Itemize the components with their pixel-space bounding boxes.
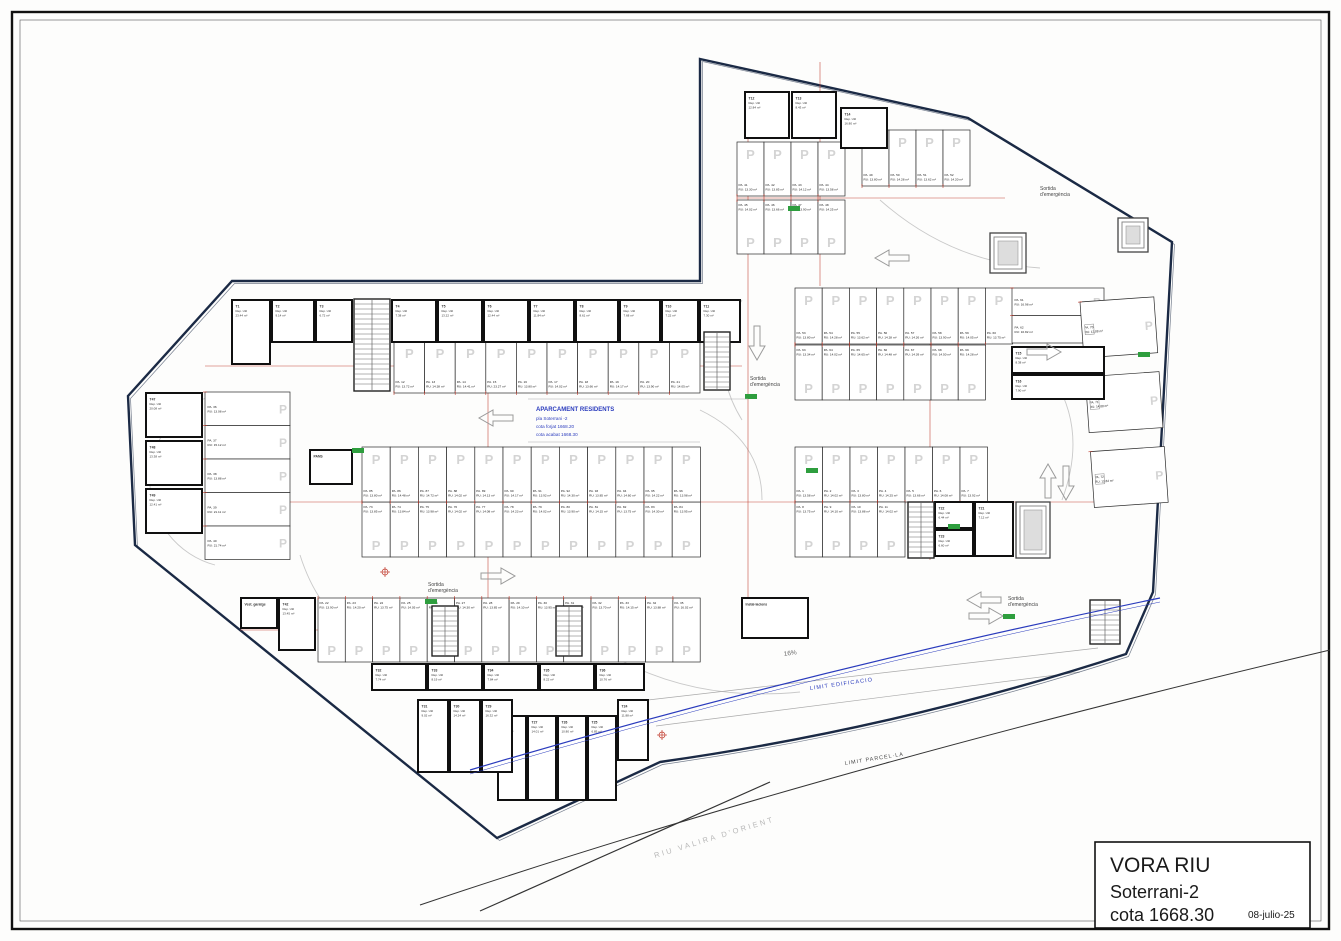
stall-area: RU: 13.95 m² (674, 510, 692, 514)
stall-area: RU: 14.28 m² (824, 336, 842, 340)
stall-number: PA. 15 (487, 380, 496, 384)
storage-room: T47Rep. Util20.08 m² (146, 393, 202, 437)
storage-room: T7Rep. Util11.84 m² (530, 300, 574, 342)
traffic-arrow (481, 568, 515, 584)
parking-bank-left-wing-top-row: PPA. 12RU: 13.72 m²PPA. 13RU: 14.38 m²PP… (394, 341, 700, 395)
parking-stall: PPA. 25RU: 14.05 m² (400, 596, 427, 662)
parking-stall: PPA. 53RU: 13.80 m² (795, 288, 822, 346)
stall-area: RU: 13.66 m² (766, 208, 784, 212)
emergency-exit-line2: d'emergència (1008, 602, 1038, 608)
room-area: 16.80 m² (845, 122, 857, 126)
stall-area: RU: 13.85 m² (589, 494, 607, 498)
stall-number: PA. 80 (561, 505, 570, 509)
stall-p-mark: P (887, 452, 896, 467)
storage-room: T27Rep. Util14.01 m² (528, 716, 556, 800)
stall-area: RU: 14.23 m² (505, 510, 523, 514)
room-name: T11 (704, 305, 710, 309)
stall-area: RU: 13.30 m² (739, 188, 757, 192)
stall-area: RU: 13.90 m² (640, 385, 658, 389)
room-name: T3 (320, 305, 324, 309)
stall-p-mark: P (859, 452, 868, 467)
stall-area: RU: 13.95 m² (538, 606, 556, 610)
stall-number: PA. 40 (208, 539, 217, 543)
room-name: T10 (666, 305, 672, 309)
center-note-title: APARCAMENT RESIDENTS (536, 407, 614, 413)
stall-area: RU: 14.02 m² (448, 494, 466, 498)
room-use: Rep. Util (580, 309, 592, 313)
parking-stall: PPA. 86RU: 14.48 m² (390, 447, 418, 504)
room-name: T4 (396, 305, 400, 309)
parking-stall: PPA. 14RU: 14.41 m² (455, 341, 486, 395)
parking-stall: PPA. 21RU: 14.05 m² (669, 341, 700, 395)
stall-area: RU: 14.02 m² (533, 510, 551, 514)
stall-p-mark: P (485, 452, 494, 467)
elevator-core (1016, 502, 1050, 558)
stall-p-mark: P (491, 643, 500, 658)
parking-stall: PPA. 83RU: 14.30 m² (644, 500, 672, 557)
room-name: T31 (422, 705, 428, 709)
stall-p-mark: P (654, 452, 663, 467)
stall-area: RU: 14.28 m² (878, 336, 896, 340)
stall-area: RU: 13.58 m² (820, 188, 838, 192)
room-use: Rep. Util (454, 709, 466, 713)
stall-number: PA. 61 (1015, 298, 1024, 302)
room-name: T42 (283, 603, 289, 607)
storage-room: T14Rep. Util16.80 m² (841, 108, 887, 148)
parking-stall: PPA. 11RU: 14.02 m² (878, 500, 906, 557)
parking-stall: PPA. 42RU: 13.85 m² (764, 142, 791, 198)
parking-stall: PPA. 55RU: 13.62 m² (849, 288, 876, 346)
parking-stall: PPA. 2RU: 14.02 m² (823, 447, 851, 504)
parking-stall: PPA. 13RU: 14.38 m² (425, 341, 456, 395)
parking-stall: PPA. 1RU: 13.58 m² (795, 447, 823, 504)
stall-area: RU: 13.98 m² (420, 510, 438, 514)
room-use: Rep. Util (488, 309, 500, 313)
parking-stall: PPA. 67RU: 14.39 m² (904, 343, 931, 400)
stall-area: RU: 13.90 m² (933, 336, 951, 340)
parking-stall: PPA. 92RU: 14.30 m² (559, 447, 587, 504)
parking-stall: PPA. 80RU: 13.90 m² (559, 500, 587, 557)
room-area: 16.32 m² (486, 714, 498, 718)
stall-area: RU: 14.17 m² (610, 385, 628, 389)
stall-p-mark: P (1150, 393, 1159, 408)
stall-area: RU: 21.74 m² (208, 543, 226, 547)
stall-area: RU: 13.75 m² (374, 606, 392, 610)
room-area: 8.43 m² (796, 106, 806, 110)
room-name: T22 (939, 507, 945, 511)
stall-number: PA. 90 (505, 489, 514, 493)
stall-p-mark: P (804, 381, 813, 396)
stall-p-mark: P (1144, 318, 1153, 333)
stall-p-mark: P (913, 381, 922, 396)
room-area: 9.14 m² (276, 314, 286, 318)
room-area: 7.68 m² (624, 314, 634, 318)
parking-stall: PPA. 75RU: 13.98 m² (418, 500, 446, 557)
storage-room: T34Rep. Util7.84 m² (484, 664, 538, 690)
stall-area: RU: 13.92 m² (962, 494, 980, 498)
parking-stall: PPA. 43RU: 14.12 m² (791, 142, 818, 198)
level-elevation: cota 1668.30 (1110, 905, 1214, 925)
parking-bank-center-bank-upper: PPA. 85RU: 13.80 m²PPA. 86RU: 14.48 m²PP… (362, 447, 700, 504)
stall-p-mark: P (942, 452, 951, 467)
stall-p-mark: P (382, 643, 391, 658)
stall-number: PA. 48 (820, 203, 829, 207)
parking-bank-right-center-row-2: PPA. 63RU: 13.34 m²PPA. 64RU: 14.02 m²PP… (795, 343, 985, 400)
storage-room: T35Rep. Util8.22 m² (540, 664, 594, 690)
center-note-line-3: cota acabat 1668.30 (536, 432, 578, 437)
room-area: 14.24 m² (454, 714, 466, 718)
stall-p-mark: P (967, 293, 976, 308)
limit-parcella-label: LIMIT PARCEL·LA (844, 752, 904, 767)
parking-stall: PPA. 33RU: 14.15 m² (618, 596, 645, 662)
stall-p-mark: P (682, 538, 691, 553)
stall-number: PA. 66 (878, 348, 887, 352)
storage-room: T31Rep. Util9.02 m² (418, 700, 448, 772)
stall-area: RU: 14.02 m² (739, 208, 757, 212)
lift-car-inner (1024, 510, 1042, 550)
stall-p-mark: P (940, 381, 949, 396)
plan-layer: PPA. 1RU: 13.58 m²PPA. 2RU: 14.02 m²PPA.… (128, 59, 1175, 841)
turning-arc (700, 410, 762, 500)
stall-area: RU: 13.90 m² (561, 510, 579, 514)
stall-area: RU: 14.05 m² (671, 385, 689, 389)
stall-number: PA. 22 (320, 601, 329, 605)
room-area: 7.84 m² (488, 678, 498, 682)
room-use: Rep. Util (666, 309, 678, 313)
stall-p-mark: P (400, 452, 409, 467)
equipment-mark-green (1138, 352, 1150, 357)
stall-number: PA. 91 (533, 489, 542, 493)
parking-stall: PPA. 12RU: 13.72 m² (394, 341, 425, 395)
parking-stall: PPA. 22RU: 13.90 m² (318, 596, 345, 662)
stall-p-mark: P (619, 346, 628, 361)
stall-area: RU: 13.84 m² (392, 510, 410, 514)
stall-number: PA. 88 (448, 489, 457, 493)
traffic-arrow (969, 608, 1003, 624)
emergency-exit-line2: d'emergència (1040, 192, 1070, 198)
parking-stall: PPA. 77RU: 14.08 m² (475, 500, 503, 557)
storage-room: T33Rep. Util8.19 m² (428, 664, 482, 690)
parking-stall: PPA. 17RU: 14.02 m² (547, 341, 578, 395)
storage-room: PANS (310, 450, 352, 484)
storage-room: T5Rep. Util13.22 m² (438, 300, 482, 342)
room-name: T47 (150, 398, 156, 402)
stall-number: PA. 73 (364, 505, 373, 509)
room-name: T29 (486, 705, 492, 709)
stall-area: RU: 14.48 m² (878, 353, 896, 357)
stall-number: PA. 60 (987, 331, 996, 335)
room-name: PANS (314, 455, 324, 459)
stall-number: PA. 64 (824, 348, 833, 352)
room-name: T21 (979, 507, 985, 511)
room-area: 7.90 m² (1016, 389, 1026, 393)
room-area: 8.61 m² (580, 314, 590, 318)
storage-room: T2Rep. Util9.14 m² (272, 300, 314, 342)
parking-bank-left-edge-strip: PPA. 36RU: 13.08 m²PPA. 37RU: 15.12 m²PP… (203, 392, 290, 560)
stall-number: PA. 33 (620, 601, 629, 605)
stall-p-mark: P (569, 538, 578, 553)
parking-stall: PPA. 7RU: 13.92 m² (960, 447, 988, 504)
stall-area: RU: 14.41 m² (457, 385, 475, 389)
stall-number: PA. 18 (579, 380, 588, 384)
storage-room: T8Rep. Util8.61 m² (576, 300, 618, 342)
parking-stall: PPA. 66RU: 14.48 m² (877, 343, 904, 400)
stall-p-mark: P (597, 538, 606, 553)
parking-stall: PPA. 18RU: 13.66 m² (578, 341, 609, 395)
stall-area: RU: 14.60 m² (617, 494, 635, 498)
lift-car-inner (998, 241, 1018, 265)
stall-p-mark: P (746, 235, 755, 250)
stall-p-mark: P (436, 346, 445, 361)
stall-number: PA. 76 (448, 505, 457, 509)
stall-number: PA. 20 (640, 380, 649, 384)
stall-number: PA. 12 (396, 380, 405, 384)
stall-area: RU: 13.62 m² (851, 336, 869, 340)
stall-number: PA. 25 (401, 601, 410, 605)
parking-stall: PPA. 35RU: 16.02 m² (673, 596, 700, 662)
room-area: 9.02 m² (422, 714, 432, 718)
stall-number: PA. 30 (538, 601, 547, 605)
stall-number: PA. 28 (483, 601, 492, 605)
room-use: Rep. Util (320, 309, 332, 313)
room-use: Rep. Util (1016, 356, 1028, 360)
stall-area: RU: 14.20 m² (945, 178, 963, 182)
parking-bank-upper-wing-row-1: PPA. 41RU: 13.30 m²PPA. 42RU: 13.85 m²PP… (737, 142, 845, 198)
emergency-exit-label: Sortidad'emergència (750, 376, 780, 388)
stall-area: RU: 14.05 m² (960, 336, 978, 340)
room-area: 6.60 m² (939, 544, 949, 548)
room-area: 6.44 m² (939, 516, 949, 520)
emergency-exit-label: Sortidad'emergència (1008, 596, 1038, 608)
stall-number: PA. 51 (918, 173, 927, 177)
parking-stall: PPA. 34RU: 13.88 m² (646, 596, 673, 662)
room-use: Rep. Util (796, 101, 808, 105)
stall-p-mark: P (831, 293, 840, 308)
storage-room: T42Rep. Util13.45 m² (279, 598, 315, 650)
parking-stall: PPA. 85RU: 13.80 m² (362, 447, 390, 504)
stall-number: PA. 3 (852, 489, 860, 493)
stall-p-mark: P (558, 346, 567, 361)
stall-area: RU: 21.11 m² (208, 510, 226, 514)
room-use: Rep. Util (939, 539, 951, 543)
stall-area: RU: 14.15 m² (620, 606, 638, 610)
stall-area: RU: 14.28 m² (960, 353, 978, 357)
storage-room: T30Rep. Util14.24 m² (450, 700, 480, 772)
stall-p-mark: P (800, 235, 809, 250)
stall-p-mark: P (650, 346, 659, 361)
stair-core (556, 606, 582, 656)
stall-p-mark: P (518, 643, 527, 658)
stall-p-mark: P (279, 436, 287, 450)
stall-number: PA. 29 (511, 601, 520, 605)
parking-stall: PPA. 4RU: 14.25 m² (878, 447, 906, 504)
parking-stall: PPA. 95RU: 14.22 m² (644, 447, 672, 504)
stall-number: PA. 31 (565, 601, 574, 605)
stall-p-mark: P (655, 643, 664, 658)
stall-area: RU: 14.08 m² (934, 494, 952, 498)
room-name: T34 (488, 669, 494, 673)
stall-area: RU: 14.12 m² (793, 188, 811, 192)
stair-core (432, 606, 458, 656)
stall-number: PA. 9 (824, 505, 832, 509)
room-name: T9 (624, 305, 628, 309)
storage-room: T23Rep. Util6.60 m² (935, 530, 973, 556)
storage-room: Vest. garatge (241, 598, 277, 628)
stall-number: PA. 49 (864, 173, 873, 177)
stair-core (908, 502, 934, 558)
stall-number: PA. 81 (589, 505, 598, 509)
parking-bank-center-bank-lower: PPA. 73RU: 13.85 m²PPA. 74RU: 13.84 m²PP… (362, 500, 700, 557)
room-area: 12.44 m² (488, 314, 500, 318)
parking-bank-bottom-row: PPA. 22RU: 13.90 m²PPA. 23RU: 14.20 m²PP… (318, 596, 700, 662)
project-name: VORA RIU (1110, 854, 1210, 877)
parking-stall: PPA. 89RU: 14.13 m² (475, 447, 503, 504)
stall-area: RU: 14.48 m² (392, 494, 410, 498)
storage-room: T4Rep. Util7.38 m² (392, 300, 436, 342)
stall-number: PA. 6 (934, 489, 942, 493)
room-area: 12.84 m² (749, 106, 761, 110)
storage-room: T12Rep. Util12.84 m² (745, 92, 789, 138)
stall-p-mark: P (589, 346, 598, 361)
elevator-core (990, 233, 1026, 273)
stall-number: PA. 24 (374, 601, 383, 605)
stall-p-mark: P (773, 147, 782, 162)
stall-area: RU: 16.02 m² (674, 606, 692, 610)
stall-number: PA. 1 (797, 489, 805, 493)
stall-area: RU: 16.98 m² (1015, 302, 1033, 306)
stall-p-mark: P (969, 452, 978, 467)
parking-stall: PPA. 88RU: 14.02 m² (447, 447, 475, 504)
stall-area: RU: 14.38 m² (426, 385, 444, 389)
room-area: 14.01 m² (532, 730, 544, 734)
room-use: Rep. Util (749, 101, 761, 105)
room-name: Instal·lacions (746, 603, 768, 607)
stall-area: RU: 23.27 m² (487, 385, 505, 389)
room-use: Rep. Util (562, 725, 574, 729)
room-name: T23 (939, 535, 945, 539)
stall-p-mark: P (569, 452, 578, 467)
equipment-mark-green (352, 448, 364, 453)
room-name: T30 (454, 705, 460, 709)
parking-stall: PPA. 57RU: 14.26 m² (904, 288, 931, 346)
stair-core (354, 299, 390, 391)
stall-p-mark: P (682, 643, 691, 658)
stall-number: PA. 42 (766, 183, 775, 187)
stall-number: PA. 63 (797, 348, 806, 352)
stall-area: RU: 13.66 m² (579, 385, 597, 389)
stall-number: PA. 84 (674, 505, 683, 509)
room-name: T36 (600, 669, 606, 673)
room-area: 7.74 m² (376, 678, 386, 682)
parking-stall: PPA. 3RU: 13.80 m² (850, 447, 878, 504)
room-use: Rep. Util (939, 511, 951, 515)
room-name: T13 (796, 97, 802, 101)
stall-number: PA. 62 (1015, 325, 1024, 329)
stall-area: RU: 13.88 m² (208, 476, 226, 480)
room-use: Rep. Util (704, 309, 716, 313)
parking-stall: PPA. 29RU: 14.10 m² (509, 596, 536, 662)
emergency-exit-line2: d'emergència (750, 382, 780, 388)
stall-number: PA. 36 (208, 405, 217, 409)
stall-number: PA. 27 (456, 601, 465, 605)
parking-stall: PPA. 8RU: 13.75 m² (795, 500, 823, 557)
stall-number: PA. 2 (824, 489, 832, 493)
parking-stall: PPA. 87RU: 14.72 m² (418, 447, 446, 504)
stall-number: PA. 78 (505, 505, 514, 509)
stall-area: RU: 13.80 m² (797, 336, 815, 340)
traffic-arrow (749, 326, 765, 360)
stall-p-mark: P (886, 381, 895, 396)
room-use: Rep. Util (486, 709, 498, 713)
room-name: Vest. garatge (245, 603, 266, 607)
stall-number: PA. 21 (671, 380, 680, 384)
parking-stall: PPA. 69RU: 14.28 m² (958, 343, 985, 400)
stall-area: RU: 14.30 m² (456, 606, 474, 610)
room-use: Rep. Util (432, 673, 444, 677)
storage-room: T9Rep. Util7.68 m² (620, 300, 660, 342)
stall-number: PA. 87 (420, 489, 429, 493)
stall-p-mark: P (680, 346, 689, 361)
floor-plan-canvas: PPA. 1RU: 13.58 m²PPA. 2RU: 14.02 m²PPA.… (0, 0, 1341, 941)
storage-room: Instal·lacions (742, 598, 808, 638)
stall-area: RU: 14.25 m² (820, 208, 838, 212)
stall-p-mark: P (628, 643, 637, 658)
stall-area: RU: 14.02 m² (824, 494, 842, 498)
room-walls (1012, 347, 1104, 373)
room-name: T7 (534, 305, 538, 309)
elevator-core (1118, 218, 1148, 252)
emergency-exit-label: Sortidad'emergència (1040, 186, 1070, 198)
parking-stall: PPA. 44RU: 13.58 m² (818, 142, 845, 198)
stall-area: RU: 14.72 m² (420, 494, 438, 498)
stall-number: PA. 69 (960, 348, 969, 352)
storage-room: T49Rep. Util12.41 m² (146, 489, 202, 533)
room-name: T5 (442, 305, 446, 309)
room-name: T26 (562, 721, 568, 725)
stall-p-mark: P (859, 538, 868, 553)
traffic-arrow (875, 250, 909, 266)
stall-p-mark: P (804, 452, 813, 467)
parking-stall: PPA. 63RU: 13.34 m² (795, 343, 822, 400)
stall-area: RU: 13.08 m² (208, 409, 226, 413)
stall-p-mark: P (859, 293, 868, 308)
stall-area: RU: 13.88 m² (852, 510, 870, 514)
room-name: T6 (488, 305, 492, 309)
stall-p-mark: P (409, 643, 418, 658)
room-name: T14 (845, 113, 851, 117)
stall-area: RU: 14.10 m² (824, 510, 842, 514)
stall-area: RU: 14.65 m² (851, 353, 869, 357)
parking-stall: PPA. 38RU: 13.88 m² (203, 459, 290, 493)
ramp-edge-line (648, 648, 1098, 700)
stall-p-mark: P (497, 346, 506, 361)
room-name: T12 (749, 97, 755, 101)
room-area: 8.22 m² (544, 678, 554, 682)
storage-room: T32Rep. Util7.74 m² (372, 664, 426, 690)
stall-p-mark: P (597, 452, 606, 467)
stall-area: RU: 14.26 m² (905, 336, 923, 340)
stall-number: PA. 68 (933, 348, 942, 352)
room-use: Rep. Util (396, 309, 408, 313)
title-block: VORA RIU Soterrani-2 cota 1668.30 08-jul… (1095, 842, 1310, 928)
stall-p-mark: P (600, 643, 609, 658)
lift-car-inner (1126, 226, 1140, 244)
stall-number: PA. 16 (518, 380, 527, 384)
stall-area: RU: 13.90 m² (320, 606, 338, 610)
stall-number: PA. 55 (851, 331, 860, 335)
stall-p-mark: P (887, 538, 896, 553)
room-use: Rep. Util (979, 511, 991, 515)
